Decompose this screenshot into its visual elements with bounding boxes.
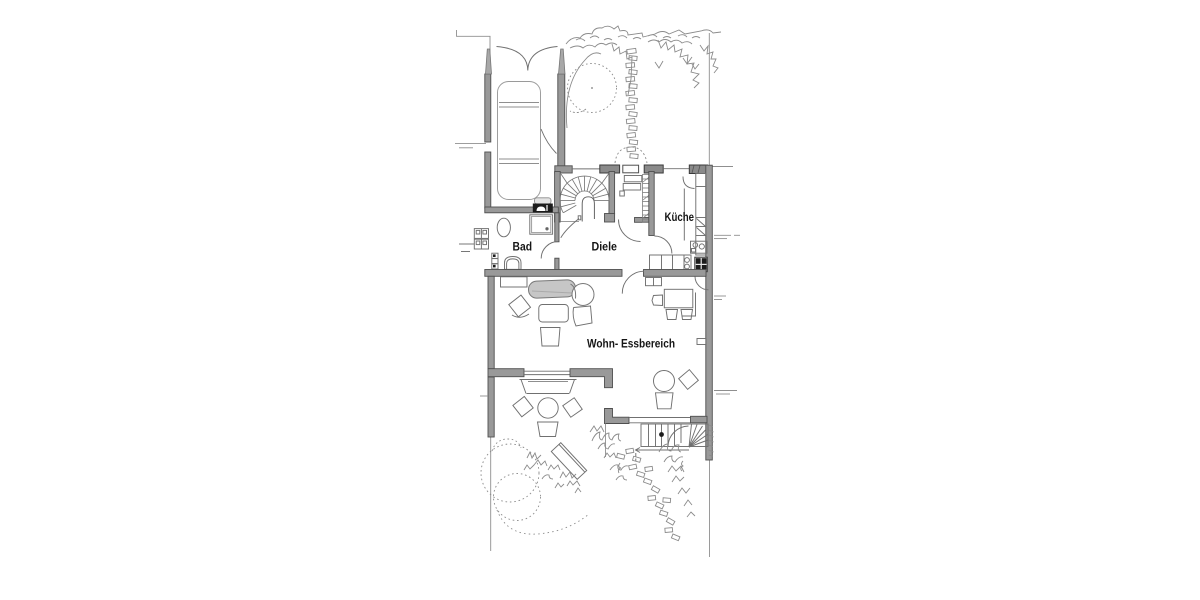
svg-text:Wohn- Essbereich: Wohn- Essbereich [587,337,675,351]
svg-text:Bad: Bad [513,239,533,253]
svg-text:Diele: Diele [592,239,618,253]
svg-text:Küche: Küche [665,210,695,224]
